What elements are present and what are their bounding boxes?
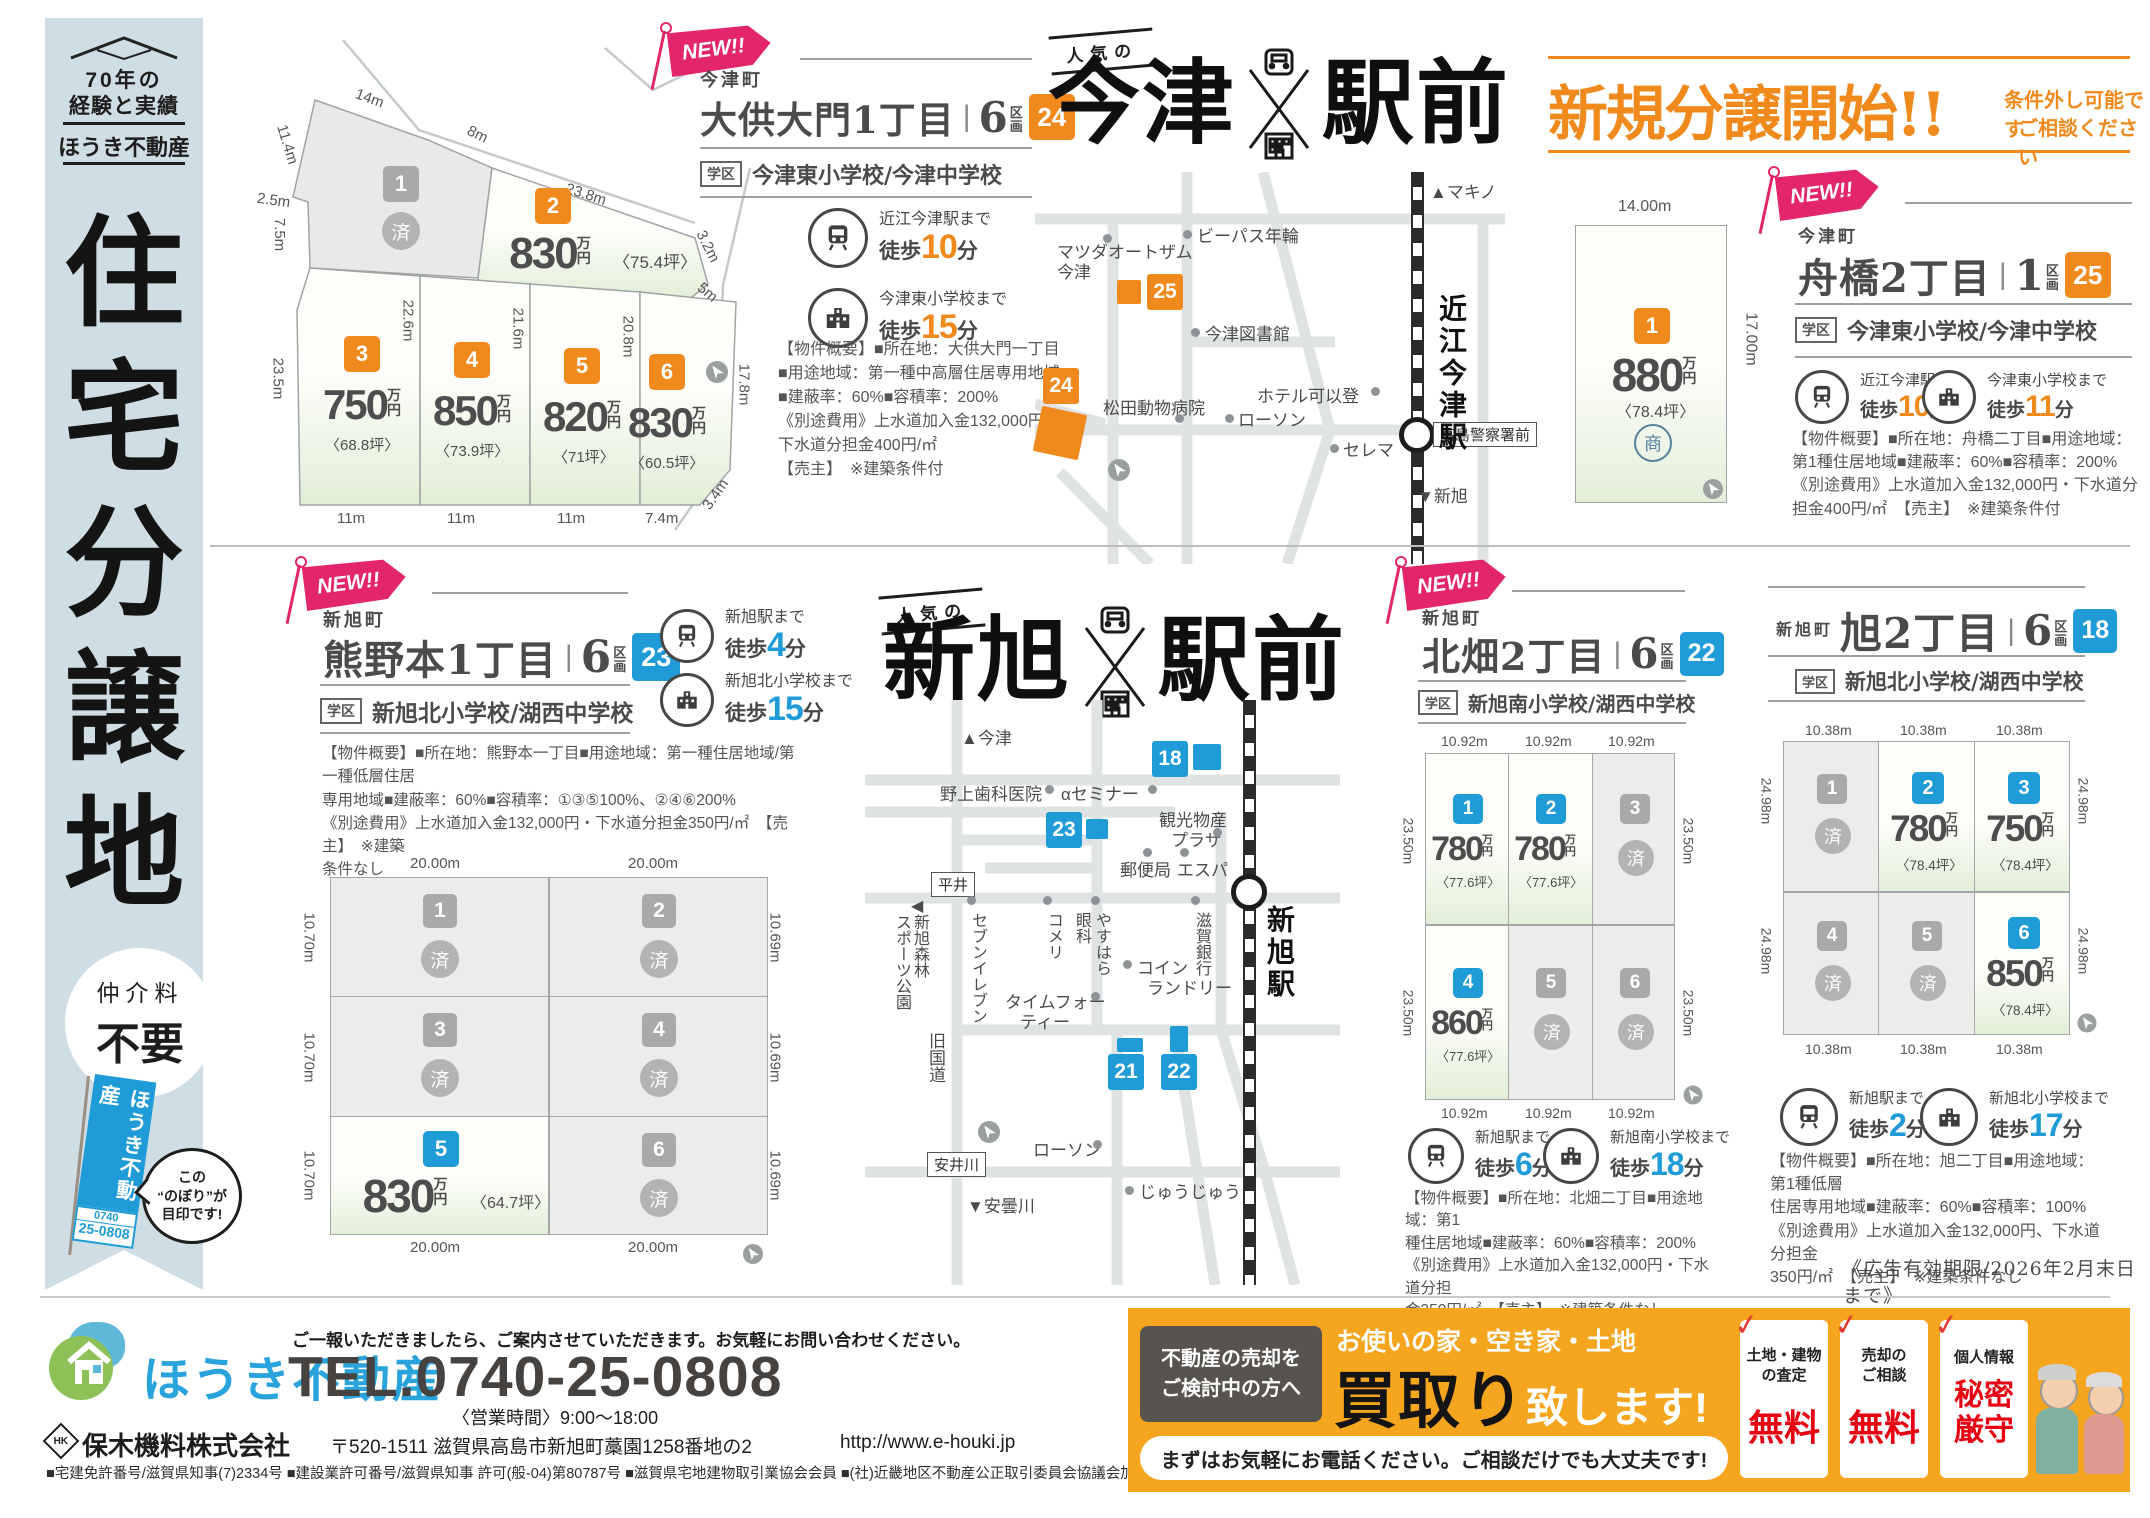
walk-minutes: 10 bbox=[921, 228, 957, 266]
overview-line: 【売主】 ※建築条件付 bbox=[778, 458, 1070, 482]
banner-rule bbox=[1548, 56, 2130, 59]
lot-area: 〈68.8坪〉 bbox=[325, 434, 399, 455]
lot-location-square bbox=[1170, 1026, 1188, 1052]
title-char: 住 bbox=[64, 214, 184, 334]
map-label: ホテル可以登 bbox=[1257, 382, 1359, 407]
lot-number-badge: 6 bbox=[1620, 968, 1650, 998]
roof-icon bbox=[67, 32, 181, 62]
banner-title: 新規分譲開始!! bbox=[1548, 66, 1945, 153]
kaitori-box: 不動産の売却を ご検討中の方へ お使いの家・空き家・土地 買取り 致します! ま… bbox=[1128, 1308, 2130, 1492]
sold-mark: 済 bbox=[640, 1179, 678, 1217]
map-dot bbox=[967, 896, 976, 905]
dim-label: 10.92m bbox=[1608, 733, 1655, 749]
person-hair bbox=[2086, 1372, 2122, 1387]
school-names: 新旭北小学校/湖西中学校 bbox=[1845, 666, 2084, 696]
walk-label: 徒歩 bbox=[1610, 1158, 1650, 1180]
property-name: 大供大門1丁目 bbox=[700, 90, 955, 144]
price-number: 750 bbox=[1986, 810, 2042, 847]
lot-number-badge: 5 bbox=[1912, 921, 1942, 951]
map-label: ▲今津 bbox=[961, 724, 1012, 749]
property-overview: 【物件概要】■所在地：北畑二丁目■用途地域：第1 種住居地域■建蔽率：60%■容… bbox=[1405, 1188, 1713, 1323]
plot-cell: 2 780 万円 〈77.6坪〉 bbox=[1508, 753, 1593, 925]
map-label: 松田動物病院 bbox=[1103, 394, 1205, 419]
dim-label: 10.69m bbox=[767, 912, 784, 962]
unit-yen: 円 bbox=[1482, 846, 1493, 858]
lot-area: 〈77.6坪〉 bbox=[1436, 1046, 1500, 1065]
divider bbox=[1418, 680, 1686, 682]
dim-label: 10.92m bbox=[1525, 733, 1572, 749]
map-dot bbox=[1371, 387, 1380, 396]
school-zone-row: 学区 新旭南小学校/湖西中学校 bbox=[1418, 688, 1695, 717]
dim-label: 24.98m bbox=[1758, 778, 1774, 825]
lot-count: 6 bbox=[581, 632, 612, 683]
price-number: 860 bbox=[1431, 1006, 1482, 1040]
dim-label: 10.69m bbox=[767, 1150, 784, 1200]
dim-label: 20.00m bbox=[628, 1239, 678, 1256]
lot-number-badge: 4 bbox=[454, 342, 490, 378]
school-zone-tag: 学区 bbox=[700, 161, 742, 187]
lot-price: 830 万円 bbox=[602, 402, 732, 444]
main-title: 住 宅 分 譲 地 bbox=[45, 214, 203, 914]
property-name: 舟橋2丁目 bbox=[1798, 246, 1991, 304]
lot-number-badge: 2 bbox=[1536, 794, 1566, 824]
kaitori-big2: 致します! bbox=[1526, 1374, 1708, 1435]
map-label: セブンイレブン bbox=[965, 912, 989, 1024]
lot-location-square bbox=[1193, 744, 1221, 770]
card-title: 売却の bbox=[1861, 1347, 1906, 1364]
bubble-line: 目印です! bbox=[162, 1205, 223, 1224]
license-line: ■宅建免許番号/滋賀県知事(7)2334号 ■建設業許可番号/滋賀県知事 許可(… bbox=[46, 1462, 1149, 1483]
check-icon: ✓ bbox=[1932, 1306, 1962, 1344]
walk-label: 徒歩 bbox=[1475, 1158, 1515, 1180]
school-names: 新旭南小学校/湖西中学校 bbox=[1468, 688, 1695, 717]
lot-area: 〈78.4坪〉 bbox=[1992, 999, 2059, 1019]
dim-label: 10.92m bbox=[1441, 733, 1488, 749]
price-number: 850 bbox=[433, 390, 497, 432]
company-name: 保木機料株式会社 bbox=[82, 1426, 290, 1463]
minute-label: 分 bbox=[2055, 400, 2074, 421]
walk-label: 徒歩 bbox=[1849, 1119, 1889, 1141]
school-zone-row: 学区 今津東小学校/今津中学校 bbox=[700, 158, 1002, 190]
sold-mark: 済 bbox=[1910, 965, 1946, 1001]
overview-line: 【物件概要】■所在地：北畑二丁目■用途地域：第1 bbox=[1405, 1188, 1713, 1233]
card-title: の査定 bbox=[1761, 1367, 1806, 1384]
lot-number-badge: 2 bbox=[1912, 772, 1944, 804]
flag-rule bbox=[800, 58, 1032, 60]
lot-area: 〈78.4坪〉 bbox=[1616, 398, 1695, 422]
map-label: 滋賀銀行 bbox=[1189, 912, 1213, 976]
fee-free: 不要 bbox=[96, 1008, 184, 1072]
hk-mark: HK bbox=[43, 1423, 80, 1460]
train-icon bbox=[808, 208, 868, 268]
walk-minutes: 6 bbox=[1515, 1146, 1532, 1182]
divider bbox=[1768, 655, 2085, 657]
lot-number-badge: 6 bbox=[642, 1133, 676, 1167]
lot-area: 〈78.4坪〉 bbox=[1896, 854, 1963, 874]
sold-mark: 済 bbox=[1815, 965, 1851, 1001]
dim-label: 10.38m bbox=[1996, 1041, 2043, 1057]
bubble-line: “のぼり”が bbox=[157, 1187, 227, 1206]
lot-area: 〈71坪〉 bbox=[553, 446, 615, 467]
minute-label: 分 bbox=[2063, 1119, 2083, 1141]
minute-label: 分 bbox=[785, 638, 806, 661]
plot-cell: 5 済 bbox=[1878, 892, 1975, 1035]
dim-label: 20.00m bbox=[628, 855, 678, 872]
lot-area: 〈77.6坪〉 bbox=[1519, 872, 1583, 891]
railway-line bbox=[1243, 700, 1256, 1285]
unit-man: 万 bbox=[433, 1177, 447, 1192]
unit-yen: 円 bbox=[577, 251, 591, 266]
couple-illustration bbox=[2036, 1354, 2126, 1480]
sold-mark: 済 bbox=[1618, 1014, 1654, 1050]
access-destination: 近江今津駅まで bbox=[879, 210, 991, 229]
card-title: ご相談 bbox=[1861, 1367, 1906, 1384]
minute-label: 分 bbox=[1684, 1158, 1704, 1180]
check-icon: ✓ bbox=[1832, 1306, 1862, 1344]
flyer-page: 70年の 経験と実績 ほうき不動産 住 宅 分 譲 地 仲介料 不要 ほうき不動… bbox=[0, 0, 2150, 1518]
lot-location-square bbox=[1117, 280, 1141, 304]
overview-line: 第1種住居地域■建蔽率：60%■容積率：200% bbox=[1792, 451, 2140, 474]
school-zone-tag: 学区 bbox=[1795, 317, 1837, 343]
lot-count: 1 bbox=[2015, 251, 2044, 300]
compass-icon bbox=[977, 1120, 1001, 1144]
lot-number-badge: 2 bbox=[642, 894, 676, 928]
unit-yen: 円 bbox=[1565, 846, 1576, 858]
kaitori-lead-box: 不動産の売却を ご検討中の方へ bbox=[1140, 1326, 1322, 1422]
flag-pole bbox=[286, 565, 301, 624]
divider bbox=[320, 684, 630, 686]
walk-minutes: 11 bbox=[2025, 390, 2055, 423]
town-label: 新旭町 bbox=[1776, 616, 1833, 640]
price-number: 830 bbox=[509, 232, 576, 276]
lot-number-badge: 4 bbox=[1453, 968, 1483, 998]
kaitori-lead-line: ご検討中の方へ bbox=[1161, 1374, 1301, 1404]
lot-number-badge: 5 bbox=[564, 348, 600, 384]
separator: | bbox=[1999, 258, 2007, 292]
unit-yen: 円 bbox=[387, 403, 401, 418]
flag-rule bbox=[432, 592, 628, 594]
property-name-row: 大供大門1丁目 | 6 区画 24 bbox=[700, 90, 1075, 144]
unit-yen: 円 bbox=[433, 1192, 447, 1207]
map-label: ◀ bbox=[911, 896, 923, 916]
walk-label: 徒歩 bbox=[879, 240, 921, 263]
dim-label: 14.00m bbox=[1618, 198, 1671, 216]
map-dot bbox=[1225, 414, 1234, 423]
dim-label: 11m bbox=[447, 510, 475, 527]
dim-label: 20.00m bbox=[410, 855, 460, 872]
map-label: ローソン bbox=[1033, 1136, 1101, 1161]
sold-mark: 済 bbox=[421, 1059, 459, 1097]
map-label: 眼科 bbox=[1069, 912, 1093, 944]
sold-mark: 済 bbox=[1534, 1014, 1570, 1050]
dim-label: 23.50m bbox=[1400, 990, 1416, 1037]
hk-text: HK bbox=[54, 1435, 68, 1446]
map-dot bbox=[1330, 444, 1339, 453]
access-destination: 新旭駅まで bbox=[1475, 1129, 1552, 1147]
title-char: 分 bbox=[64, 504, 184, 624]
school-zone-row: 学区 新旭北小学校/湖西中学校 bbox=[1795, 666, 2084, 696]
fee-label: 仲介料 bbox=[97, 974, 184, 1008]
sold-mark: 済 bbox=[421, 940, 459, 978]
unit-yen: 円 bbox=[692, 421, 706, 436]
map-label: ローソン bbox=[1238, 406, 1306, 431]
lot-number-badge: 4 bbox=[642, 1013, 676, 1047]
kaitori-card: ✓ 個人情報 秘密厳守 bbox=[1940, 1320, 2028, 1478]
imazu-area-map: ▲マキノ ビーパス年輪 マツダオートザム 今津 25 今津図書館 24 松田動物… bbox=[1035, 172, 1505, 564]
dim-label: 21.6m bbox=[509, 308, 526, 350]
map-label: コメリ bbox=[1041, 912, 1065, 960]
card-secret: 厳守 bbox=[1954, 1414, 2014, 1447]
divider bbox=[1768, 586, 2085, 588]
lot-count: 6 bbox=[979, 93, 1008, 142]
divider bbox=[1795, 356, 2132, 358]
walk-minutes: 4 bbox=[767, 626, 785, 664]
property-name-row: 舟橋2丁目 | 1 区画 25 bbox=[1798, 246, 2111, 304]
unit-yen: 円 bbox=[1482, 1020, 1493, 1032]
check-icon: ✓ bbox=[1732, 1306, 1762, 1344]
lot-area: 〈73.9坪〉 bbox=[435, 440, 509, 461]
lot-number-badge: 2 bbox=[535, 188, 571, 224]
price-number: 780 bbox=[1890, 810, 1946, 847]
walk-label: 徒歩 bbox=[725, 702, 767, 725]
map-label: セレマ bbox=[1343, 436, 1394, 461]
dim-label: 17.8m bbox=[735, 364, 752, 406]
card-title: 土地・建物 bbox=[1746, 1347, 1821, 1364]
listing-number-badge: 25 bbox=[2065, 252, 2111, 298]
divider bbox=[1768, 700, 2085, 702]
station-cross-icon bbox=[1242, 48, 1316, 160]
shinasahi-title-left: 新旭 bbox=[883, 615, 1071, 707]
kaitori-card: ✓ 売却のご相談 無料 bbox=[1840, 1320, 1928, 1478]
map-label: ▲マキノ bbox=[1430, 178, 1497, 203]
sold-mark: 済 bbox=[640, 1059, 678, 1097]
overview-line: 担金400円/㎡ 【売主】 ※建築条件付 bbox=[1792, 498, 2140, 521]
map-label: じゅうじゅう bbox=[1139, 1178, 1241, 1203]
unit-man: 万 bbox=[497, 394, 511, 409]
town-label: 今津町 bbox=[1798, 222, 1858, 247]
walk-minutes: 15 bbox=[767, 690, 803, 728]
title-char: 宅 bbox=[64, 359, 184, 479]
overview-line: 【物件概要】■所在地：大供大門一丁目 bbox=[778, 338, 1070, 362]
kukaku-char: 画 bbox=[2046, 278, 2059, 292]
overview-line: 【物件概要】■所在地：旭二丁目■用途地域：第1種低層 bbox=[1770, 1150, 2105, 1196]
sold-mark: 済 bbox=[1815, 818, 1851, 854]
school-zone-row: 学区 今津東小学校/今津中学校 bbox=[1795, 314, 2097, 346]
company-logo bbox=[45, 1318, 133, 1406]
company-url: http://www.e-houki.jp bbox=[840, 1432, 1015, 1454]
unit-yen: 円 bbox=[2042, 970, 2054, 983]
unit-man: 万 bbox=[1565, 834, 1576, 846]
kukaku-char: 画 bbox=[613, 660, 626, 674]
walk-minutes: 2 bbox=[1889, 1107, 1906, 1143]
map-dot bbox=[1091, 896, 1100, 905]
plot-cell: 3 済 bbox=[330, 996, 549, 1117]
card-title: 個人情報 bbox=[1940, 1346, 2028, 1367]
map-label: ▼新旭 bbox=[1417, 482, 1468, 507]
map-label: ランドリー bbox=[1147, 974, 1232, 999]
price-number: 750 bbox=[323, 384, 387, 426]
minute-label: 分 bbox=[957, 240, 978, 263]
price-number: 850 bbox=[1986, 955, 2042, 992]
row-divider bbox=[210, 545, 2130, 547]
overview-line: ■用途地域：第一種中高層住居専用地域 bbox=[778, 362, 1070, 386]
access-item: 新旭北小学校まで 徒歩17分 bbox=[1920, 1088, 2109, 1146]
plot-cell: 3 済 bbox=[1592, 753, 1675, 925]
card-free: 無料 bbox=[1740, 1399, 1828, 1451]
unit-man: 万 bbox=[692, 406, 706, 421]
divider bbox=[1795, 303, 2132, 305]
access-destination: 今津東小学校まで bbox=[879, 290, 1007, 309]
flag-rule bbox=[1905, 202, 2132, 204]
price-number: 780 bbox=[1514, 832, 1565, 866]
footer-hours: 〈営業時間〉9:00〜18:00 bbox=[452, 1404, 658, 1430]
access-destination: 今津東小学校まで bbox=[1987, 372, 2107, 390]
dim-label: 10.92m bbox=[1525, 1105, 1572, 1121]
compass-icon bbox=[1702, 478, 1724, 500]
map-label-boxed: 安井川 bbox=[927, 1152, 986, 1177]
bubble-line: この bbox=[178, 1168, 206, 1187]
train-icon bbox=[660, 609, 714, 663]
divider bbox=[63, 162, 185, 165]
overview-line: ■建蔽率：60%■容積率：200% bbox=[778, 386, 1070, 410]
lot-location-square bbox=[1086, 819, 1108, 839]
train-icon bbox=[1795, 370, 1849, 424]
map-dot bbox=[1091, 992, 1100, 1001]
unit-yen: 円 bbox=[497, 409, 511, 424]
price-number: 830 bbox=[628, 402, 692, 444]
kukaku-char: 区 bbox=[2046, 264, 2059, 278]
walk-minutes: 18 bbox=[1650, 1146, 1684, 1182]
map-label: 野上歯科医院 bbox=[940, 780, 1042, 805]
sold-mark: 済 bbox=[1618, 840, 1654, 876]
compass-icon bbox=[705, 360, 729, 384]
new-flag-label: NEW!! bbox=[1402, 555, 1509, 611]
map-dot bbox=[1093, 1140, 1102, 1149]
shinasahi-title-right: 駅前 bbox=[1158, 615, 1346, 707]
sold-mark: 済 bbox=[382, 212, 420, 250]
new-flag-label: NEW!! bbox=[302, 555, 409, 611]
overview-line: 専用地域■建蔽率：60%■容積率：①③⑤100%、②④⑥200% bbox=[322, 789, 800, 812]
compass-icon bbox=[1683, 1085, 1703, 1105]
unit-man: 万 bbox=[1482, 834, 1493, 846]
plot-cell: 6 済 bbox=[549, 1116, 768, 1235]
map-marker: 23 bbox=[1046, 812, 1082, 848]
dim-label: 24.98m bbox=[2075, 778, 2091, 825]
kukaku-char: 区 bbox=[1660, 643, 1673, 657]
access-destination: 新旭駅まで bbox=[1849, 1090, 1926, 1108]
map-dot bbox=[1191, 896, 1200, 905]
map-label: αセミナー bbox=[1061, 780, 1139, 805]
kaitori-big1: 買取り bbox=[1334, 1350, 1526, 1440]
dim-label: 23.50m bbox=[1680, 990, 1696, 1037]
walk-label: 徒歩 bbox=[1860, 400, 1898, 421]
lot-area: 〈77.6坪〉 bbox=[1436, 872, 1500, 891]
price-number: 820 bbox=[543, 396, 607, 438]
walk-label: 徒歩 bbox=[725, 638, 767, 661]
dim-label: 23.5m bbox=[269, 358, 286, 400]
divider bbox=[63, 122, 185, 125]
overview-line: 《別途費用》上水道加入金132,000円・下水道分担 bbox=[1405, 1255, 1713, 1300]
kaitori-lead-line: 不動産の売却を bbox=[1161, 1344, 1301, 1374]
minute-label: 分 bbox=[803, 702, 824, 725]
dim-label: 10.70m bbox=[301, 1032, 318, 1082]
card-secret: 秘密 bbox=[1954, 1379, 2014, 1412]
divider bbox=[700, 196, 1032, 198]
price-number: 880 bbox=[1612, 352, 1683, 398]
property-name-row: 北畑2丁目 | 6 区画 22 bbox=[1422, 626, 1724, 681]
walk-minutes: 17 bbox=[2029, 1107, 2063, 1143]
map-marker: 22 bbox=[1161, 1054, 1197, 1090]
unit-yen: 円 bbox=[1682, 371, 1696, 386]
dim-label: 10.92m bbox=[1441, 1105, 1488, 1121]
lot-location-square bbox=[1117, 1038, 1143, 1052]
dim-label: 22.6m bbox=[399, 300, 416, 342]
plot-cell: 6 済 bbox=[1592, 925, 1675, 1100]
map-dot bbox=[1148, 785, 1157, 794]
access-item: 新旭駅まで 徒歩4分 bbox=[660, 608, 806, 665]
commercial-zone-mark: 商 bbox=[1634, 424, 1672, 462]
overview-line: 【物件概要】■所在地：熊野本一丁目■用途地域：第一種住居地域/第一種低層住居 bbox=[322, 742, 800, 789]
plot-cell: 4 860 万円 〈77.6坪〉 bbox=[1425, 925, 1509, 1100]
title-char: 譲 bbox=[64, 649, 184, 769]
map-label: 旧国道 bbox=[923, 1032, 948, 1083]
new-flag-label: NEW!! bbox=[1775, 165, 1882, 221]
kaitori-foot-text: まずはお気軽にお電話ください。ご相談だけでも大丈夫です! bbox=[1161, 1444, 1708, 1473]
lot-number-badge: 4 bbox=[1817, 921, 1847, 951]
odai-plot-diagram: 14m 8m 23.8m 11.4m 2.5m 7.5m 3.2m 5m 23.… bbox=[205, 40, 765, 540]
plot-cell: 5 済 bbox=[1508, 925, 1593, 1100]
property-overview: 【物件概要】■所在地：舟橋二丁目■用途地域： 第1種住居地域■建蔽率：60%■容… bbox=[1792, 428, 2140, 521]
lot-number-badge: 3 bbox=[1620, 794, 1650, 824]
map-dot bbox=[1213, 828, 1222, 837]
lot-number-badge: 3 bbox=[2008, 772, 2040, 804]
card-free: 無料 bbox=[1840, 1399, 1928, 1451]
dim-label: 11m bbox=[557, 510, 585, 527]
lot-number-badge: 3 bbox=[344, 336, 380, 372]
school-zone-tag: 学区 bbox=[320, 698, 362, 724]
lot-count: 6 bbox=[2023, 606, 2052, 655]
overview-line: 《別途費用》上水道加入金132,000円・下水道分 bbox=[1792, 474, 2140, 497]
overview-line: 《別途費用》上水道加入金132,000円・ bbox=[778, 410, 1070, 434]
nobori-speech-bubble: この “のぼり”が 目印です! bbox=[142, 1148, 242, 1244]
dim-label: 24.98m bbox=[1758, 928, 1774, 975]
access-destination: 新旭北小学校まで bbox=[725, 672, 853, 691]
lot-number-badge: 1 bbox=[1453, 794, 1483, 824]
title-char: 地 bbox=[64, 794, 184, 914]
dim-label: 10.92m bbox=[1608, 1105, 1655, 1121]
dim-label: 10.38m bbox=[1900, 1041, 1947, 1057]
map-marker: 24 bbox=[1043, 368, 1079, 404]
lot-area: 〈78.4坪〉 bbox=[1992, 854, 2059, 874]
flag-rule bbox=[1512, 590, 1685, 592]
dim-label: 20.8m bbox=[619, 316, 636, 358]
price-number: 830 bbox=[363, 1173, 434, 1219]
school-names: 新旭北小学校/湖西中学校 bbox=[372, 694, 633, 728]
plot-cell: 3 750 万円 〈78.4坪〉 bbox=[1974, 741, 2070, 892]
unit-man: 万 bbox=[387, 388, 401, 403]
dim-label: 10.70m bbox=[301, 1150, 318, 1200]
unit-man: 万 bbox=[1482, 1008, 1493, 1020]
kaitori-card: ✓ 土地・建物の査定 無料 bbox=[1740, 1320, 1828, 1478]
tagline-line2: 経験と実績 bbox=[45, 90, 203, 120]
lot-location-square bbox=[1033, 406, 1088, 461]
lot-number-badge: 5 bbox=[1536, 968, 1566, 998]
unit-yen: 円 bbox=[1946, 825, 1958, 838]
property-overview: 【物件概要】■所在地：熊野本一丁目■用途地域：第一種住居地域/第一種低層住居 専… bbox=[322, 742, 800, 882]
compass-icon bbox=[742, 1243, 764, 1265]
kukaku-char: 画 bbox=[1010, 120, 1023, 134]
plot-cell: 6 850 万円 〈78.4坪〉 bbox=[1974, 892, 2070, 1035]
